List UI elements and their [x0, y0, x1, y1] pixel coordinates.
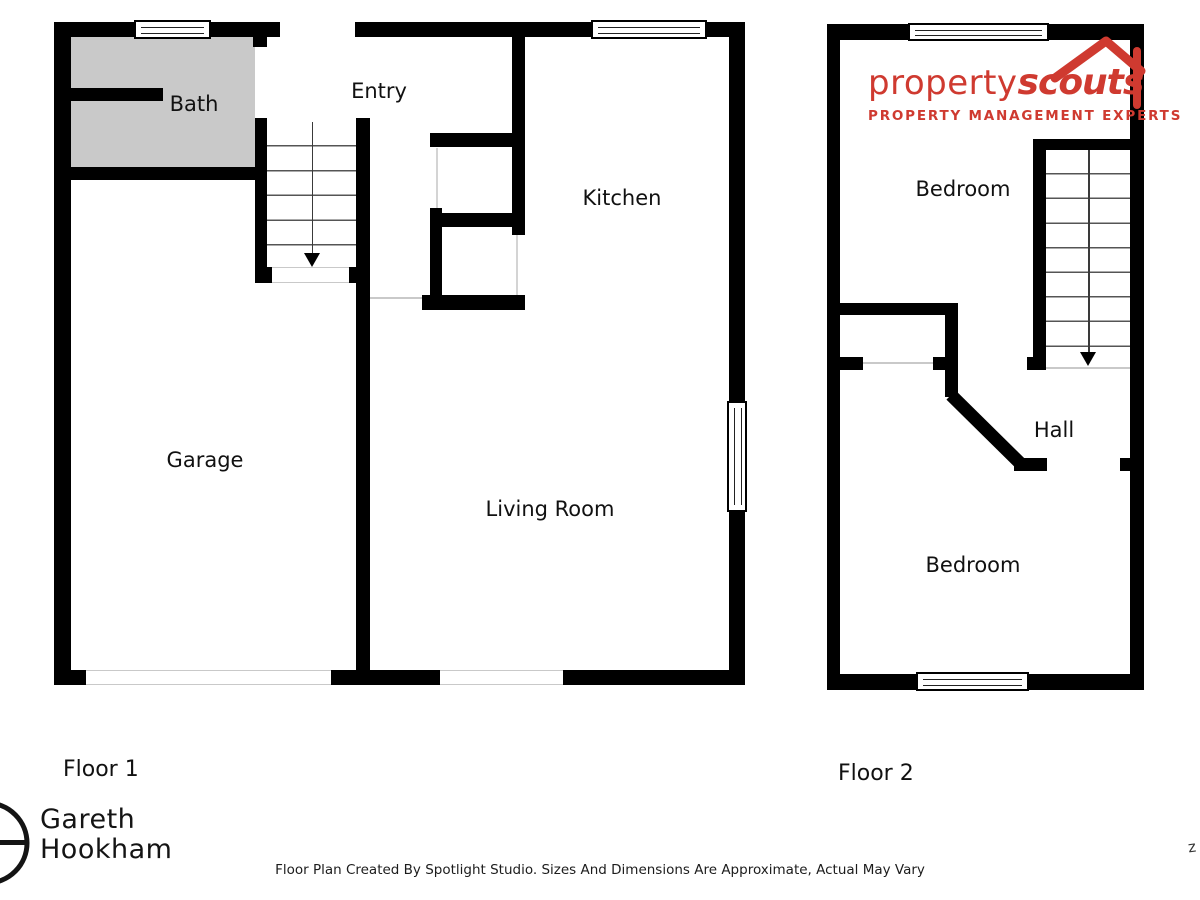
staircase-floor1 — [267, 122, 356, 267]
logo-tagline: PROPERTY MANAGEMENT EXPERTS — [868, 108, 1182, 124]
window-pane-icon — [598, 27, 700, 34]
window — [916, 672, 1029, 691]
wall — [54, 88, 163, 101]
floor1-label: Floor 1 — [63, 757, 139, 782]
room-label-bath: Bath — [170, 92, 219, 116]
stairs-threshold-opening — [267, 267, 357, 283]
room-label-hall: Hall — [1034, 418, 1074, 442]
wall — [945, 303, 958, 397]
agent-name-first: Gareth — [40, 805, 172, 835]
room-label-bedroom-top: Bedroom — [916, 177, 1011, 201]
window-pane-icon — [734, 408, 742, 505]
wall — [827, 357, 863, 370]
edge-mark: z — [1187, 838, 1197, 857]
bath-room-area — [71, 37, 255, 167]
logo-word-property: property — [868, 63, 1018, 103]
door-threshold — [370, 297, 422, 299]
stairs-down-arrow-icon — [304, 253, 320, 267]
closet-door-line — [516, 235, 518, 295]
stairs-threshold — [1046, 367, 1130, 369]
stairs-down-arrow-icon — [1080, 352, 1096, 366]
room-label-living-room: Living Room — [486, 497, 615, 521]
window-pane-icon — [141, 27, 204, 34]
agent-name-last: Hookham — [40, 835, 172, 865]
wall — [253, 37, 267, 47]
patio-door-opening — [440, 670, 563, 685]
stairs-direction-line — [1088, 150, 1090, 354]
window — [134, 20, 211, 39]
floor2-label: Floor 2 — [838, 761, 914, 786]
room-label-garage: Garage — [167, 448, 244, 472]
wall — [1033, 139, 1046, 370]
wall — [349, 267, 370, 283]
window — [591, 20, 707, 39]
room-label-bedroom-bottom: Bedroom — [926, 553, 1021, 577]
wall — [1027, 357, 1046, 370]
window — [727, 401, 747, 512]
gareth-hookham-monogram-icon — [0, 795, 32, 895]
closet-door-line — [436, 148, 438, 208]
room-label-kitchen: Kitchen — [583, 186, 662, 210]
wall — [356, 118, 370, 670]
disclaimer-text: Floor Plan Created By Spotlight Studio. … — [0, 862, 1200, 878]
wall — [54, 22, 71, 685]
window-pane-icon — [923, 679, 1022, 686]
stairs-direction-line — [312, 122, 314, 255]
staircase-floor2 — [1046, 150, 1130, 368]
wall — [440, 213, 525, 227]
wall — [512, 37, 525, 235]
door-threshold — [863, 362, 933, 364]
wall — [838, 303, 953, 315]
wall — [729, 22, 745, 685]
wall — [1120, 458, 1144, 471]
wall — [430, 133, 512, 147]
wall — [1033, 139, 1130, 150]
wall — [933, 357, 955, 370]
garage-door-opening — [86, 670, 331, 685]
wall — [255, 267, 272, 283]
window-pane-icon — [915, 30, 1042, 36]
house-roof-icon — [1040, 33, 1155, 113]
wall — [1014, 458, 1047, 471]
window — [908, 23, 1049, 41]
room-label-entry: Entry — [351, 79, 407, 103]
entry-door-opening — [280, 22, 355, 37]
wall — [255, 118, 267, 283]
wall — [54, 167, 267, 180]
